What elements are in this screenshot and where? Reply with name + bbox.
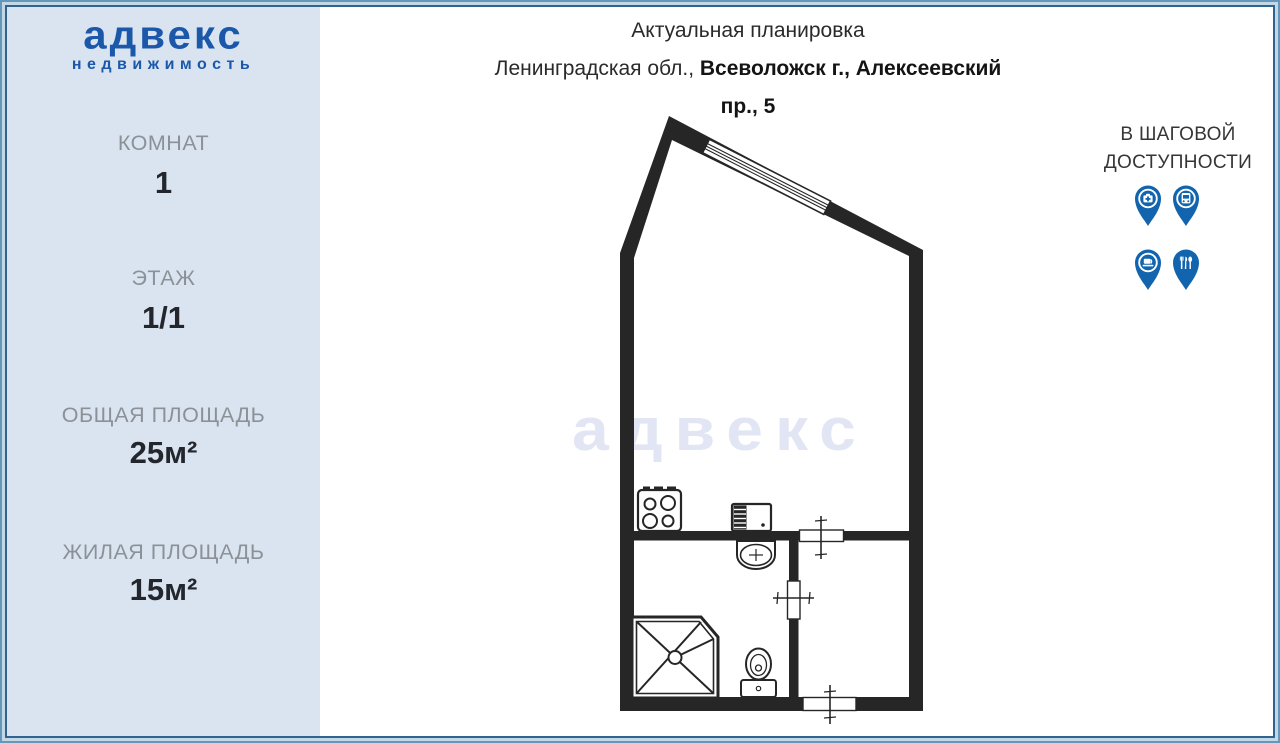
rooms-value: 1 — [7, 165, 320, 201]
bus-pin-icon — [1171, 185, 1201, 227]
interior-wall-horizontal-left — [634, 531, 800, 541]
rooms-label: КОМНАТ — [7, 131, 320, 156]
restaurant-pin-icon — [1171, 249, 1201, 291]
window — [703, 139, 831, 214]
stove — [638, 487, 681, 532]
cafe-pin-icon — [1133, 249, 1163, 291]
agency-logo-title: адвекс — [7, 16, 320, 54]
floor-label: ЭТАЖ — [7, 266, 320, 291]
total-area-label: ОБЩАЯ ПЛОЩАДЬ — [7, 403, 320, 428]
toilet — [741, 649, 776, 698]
door-room — [800, 516, 844, 559]
address-line-1: Ленинградская обл., Всеволожск г., Алекс… — [348, 50, 1148, 88]
interior-wall-horizontal-right — [843, 531, 909, 541]
address-line-2: пр., 5 — [348, 88, 1148, 126]
header: Актуальная планировка Ленинградская обл.… — [348, 12, 1148, 126]
floor-plan-panel: Актуальная планировка Ленинградская обл.… — [320, 7, 1273, 736]
walkability-title: В ШАГОВОЙ ДОСТУПНОСТИ — [1078, 121, 1273, 177]
interior-wall-vertical-upper — [789, 540, 799, 582]
kitchen-sink — [732, 504, 771, 531]
door-bathroom — [773, 581, 814, 619]
living-area-label: ЖИЛАЯ ПЛОЩАДЬ — [7, 540, 320, 565]
floor-value: 1/1 — [7, 300, 320, 336]
page-frame: адвекс недвижимость КОМНАТ 1 ЭТАЖ 1/1 ОБ… — [0, 0, 1280, 743]
page-title: Актуальная планировка — [348, 12, 1148, 50]
walkability-icons — [1133, 185, 1201, 291]
page-content: адвекс недвижимость КОМНАТ 1 ЭТАЖ 1/1 ОБ… — [5, 5, 1275, 738]
shower-cabin — [632, 617, 718, 698]
interior-wall-vertical-lower — [789, 618, 799, 697]
pharmacy-pin-icon — [1133, 185, 1163, 227]
living-area-value: 15м² — [7, 572, 320, 608]
wash-basin — [737, 541, 775, 569]
page-frame-light-line: адвекс недвижимость КОМНАТ 1 ЭТАЖ 1/1 ОБ… — [2, 2, 1278, 741]
agency-logo: адвекс недвижимость — [7, 15, 320, 74]
total-area-value: 25м² — [7, 435, 320, 471]
door-entrance — [803, 685, 856, 724]
sidebar: адвекс недвижимость КОМНАТ 1 ЭТАЖ 1/1 ОБ… — [7, 7, 320, 736]
agency-logo-subtitle: недвижимость — [7, 56, 320, 74]
